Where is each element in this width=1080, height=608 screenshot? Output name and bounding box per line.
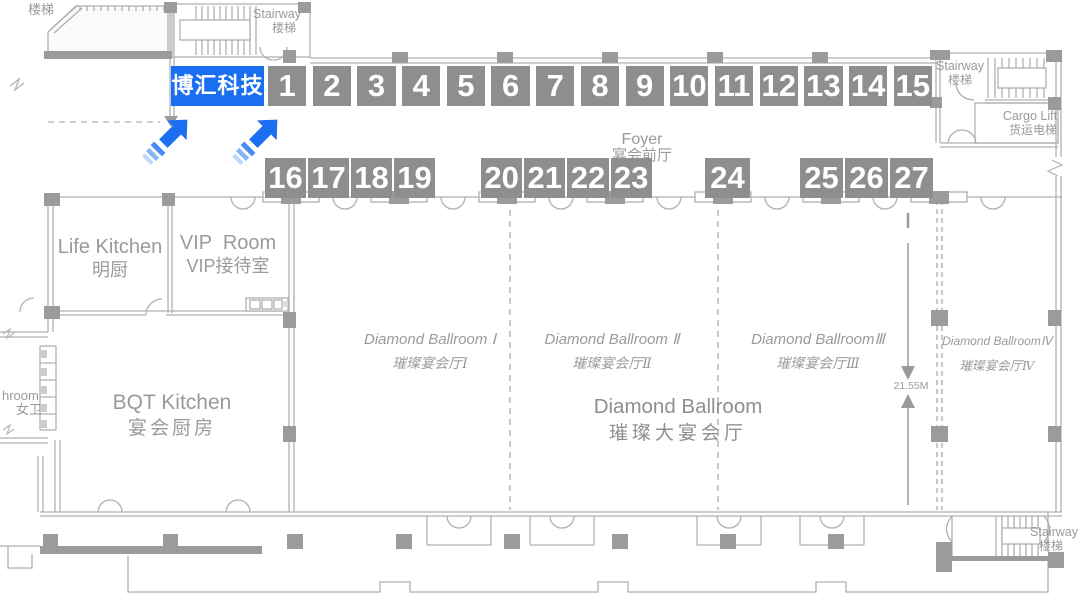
washroom-label-zh: 女卫 [16,403,42,417]
booth-group-16-19: 16171819 [265,158,435,198]
cargo-lift-label-zh: 货运电梯 [1009,124,1057,137]
booth-group-25-27: 252627 [800,158,933,198]
life-kitchen-label-zh: 明厨 [92,261,128,281]
booth-22: 22 [567,158,608,198]
ballroom-4-label-en: Diamond BallroomⅣ [942,335,1052,348]
ballroom-1-label-en: Diamond Ballroom Ⅰ [364,332,496,349]
stairway-top-label-zh: 楼梯 [272,22,296,35]
ballroom-3-label-zh: 璀璨宴会厅Ⅲ [776,357,860,372]
booth-11: 11 [715,66,753,106]
booth-12: 12 [760,66,798,106]
foyer-label-en: Foyer [622,131,663,149]
dimension-label: 21.55M [893,381,928,393]
main-ballroom-label-zh: 璀璨大宴会厅 [609,424,747,445]
booth-2: 2 [313,66,351,106]
cargo-lift-label-en: Cargo Lift [1003,110,1057,124]
booth-19: 19 [394,158,435,198]
booth-21: 21 [524,158,565,198]
booth-6: 6 [491,66,529,106]
ballroom-2-label-zh: 璀璨宴会厅Ⅱ [572,357,652,372]
vip-room-label-zh: VIP接待室 [186,257,269,277]
booth-5: 5 [447,66,485,106]
booth-8: 8 [581,66,619,106]
stairway-top-left-label-zh: 楼梯 [28,3,54,17]
booth-27: 27 [890,158,933,198]
booth-3: 3 [357,66,395,106]
booth-18: 18 [351,158,392,198]
booth-group-20-23: 20212223 [481,158,652,198]
stairway-top-right-label-zh: 楼梯 [948,74,972,87]
dimension-line [901,213,915,505]
booth-17: 17 [308,158,349,198]
stairway-bottom-right-label-en: Stairway [1030,526,1078,540]
booth-13: 13 [804,66,842,106]
ballroom-3-label-en: Diamond BallroomⅢ [751,332,885,349]
stairway-bottom-right-label-zh: 楼梯 [1039,540,1063,553]
bqt-kitchen-label-en: BQT Kitchen [113,391,232,414]
booth-group-24: 24 [705,158,750,198]
booth-7: 7 [536,66,574,106]
booth-15: 15 [894,66,932,106]
booth-25: 25 [800,158,843,198]
booth-1: 1 [268,66,306,106]
stairway-top-label-en: Stairway [253,8,301,22]
ballroom-4-label-zh: 璀璨宴会厅Ⅳ [960,359,1035,373]
booth-16: 16 [265,158,306,198]
ballroom-2-label-en: Diamond Ballroom Ⅱ [545,332,680,349]
bqt-kitchen-label-zh: 宴会厨房 [128,419,216,440]
booth-9: 9 [626,66,664,106]
booth-26: 26 [845,158,888,198]
booth-row-1: 123456789101112131415 [268,66,932,106]
booth-14: 14 [849,66,887,106]
booth-23: 23 [611,158,652,198]
booth-24: 24 [705,158,750,198]
vip-room-label-en: VIP Room [180,232,276,254]
ballroom-1-label-zh: 璀璨宴会厅Ⅰ [392,357,468,372]
booth-20: 20 [481,158,522,198]
booth-4: 4 [402,66,440,106]
floor-plan: 宴会前厅 [0,0,1080,608]
life-kitchen-label-en: Life Kitchen [58,236,163,258]
booth-10: 10 [670,66,708,106]
brand-booth-box: 博汇科技 [171,66,264,106]
main-ballroom-label-en: Diamond Ballroom [594,396,763,419]
stairway-top-right-label-en: Stairway [936,60,984,74]
